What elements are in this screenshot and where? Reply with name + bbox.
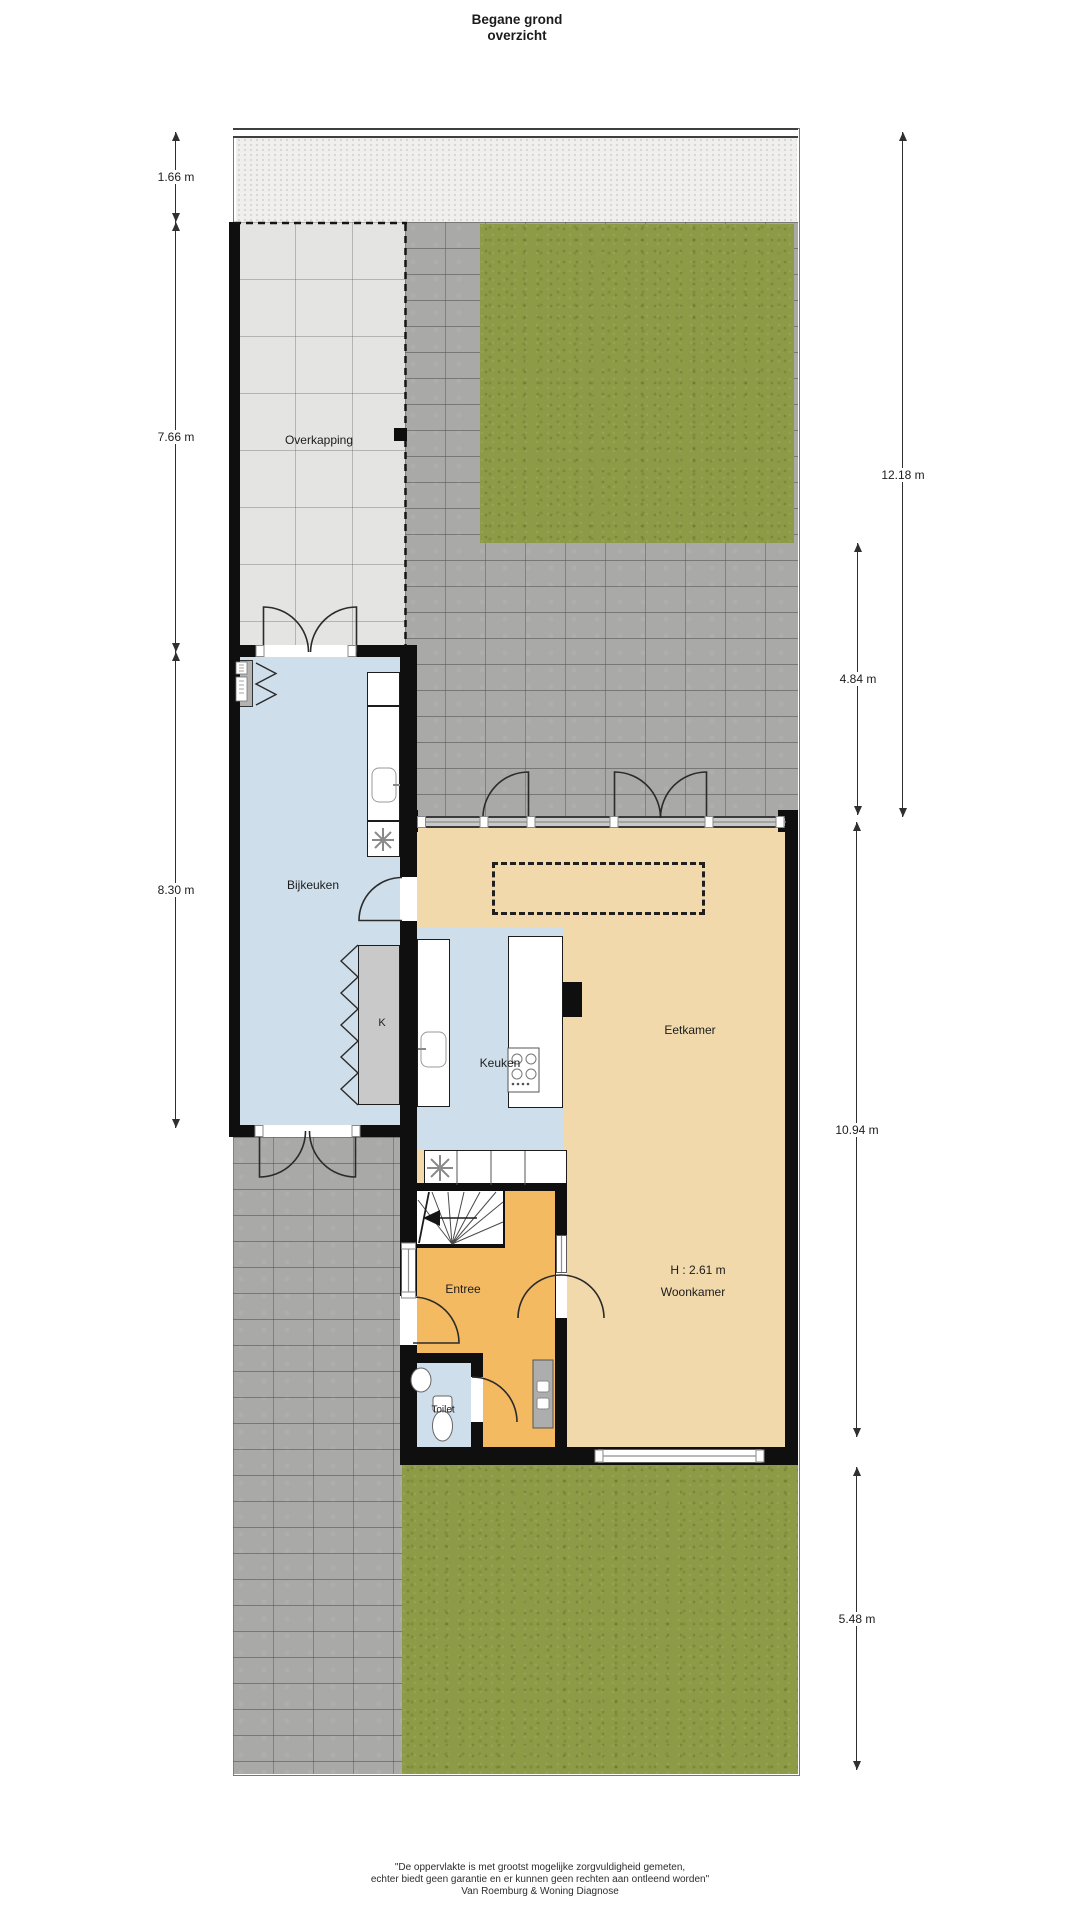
side-path-paving bbox=[233, 1137, 402, 1774]
rear-glass-facade bbox=[417, 816, 787, 828]
disclaimer-line1: "De oppervlakte is met grootst mogelijke… bbox=[0, 1862, 1080, 1874]
label-eetkamer: Eetkamer bbox=[664, 1023, 715, 1037]
dimension-left-2-label: 7.66 m bbox=[155, 430, 198, 444]
opening-bijkeuken-south-doors bbox=[259, 1125, 357, 1137]
bijkeuken-sink-counter bbox=[367, 706, 400, 821]
disclaimer: "De oppervlakte is met grootst mogelijke… bbox=[0, 1862, 1080, 1898]
label-woonkamer: Woonkamer bbox=[661, 1285, 725, 1299]
dimension-right-1-label: 12.18 m bbox=[878, 468, 927, 482]
disclaimer-line3: Van Roemburg & Woning Diagnose bbox=[0, 1886, 1080, 1898]
page-title-line2: overzicht bbox=[237, 28, 797, 44]
dimension-right-3: 10.94 m bbox=[856, 822, 857, 1437]
dimension-left-2: 7.66 m bbox=[175, 222, 176, 652]
dimension-right-2-label: 4.84 m bbox=[837, 672, 880, 686]
opening-front-door bbox=[400, 1296, 417, 1345]
opening-entree-living-door bbox=[556, 1273, 567, 1318]
wall-toilet-east-b bbox=[471, 1422, 483, 1447]
garden-grass-top bbox=[480, 224, 794, 543]
dimension-right-3-label: 10.94 m bbox=[832, 1123, 881, 1137]
dimension-right-2: 4.84 m bbox=[857, 543, 858, 815]
back-path bbox=[236, 133, 797, 222]
label-closet-k: K bbox=[378, 1017, 385, 1029]
label-woonkamer-height: H : 2.61 m bbox=[670, 1263, 725, 1277]
dimension-right-1: 12.18 m bbox=[902, 132, 903, 817]
window-entree-wall bbox=[556, 1235, 567, 1273]
wall-toilet-north bbox=[417, 1353, 483, 1363]
window-front bbox=[401, 1247, 416, 1295]
kitchen-island-sink bbox=[417, 939, 450, 1107]
dimension-left-1-label: 1.66 m bbox=[155, 170, 198, 184]
dining-table-dashed bbox=[492, 862, 705, 915]
floorplan-sheet: Begane grond overzicht bbox=[0, 0, 1080, 1920]
label-overkapping: Overkapping bbox=[285, 433, 353, 447]
kitchen-island-cooktop bbox=[508, 936, 563, 1108]
disclaimer-line2: echter biedt geen garantie en er kunnen … bbox=[0, 1874, 1080, 1886]
wall-toilet-east-a bbox=[471, 1363, 483, 1377]
dimension-right-4-label: 5.48 m bbox=[836, 1612, 879, 1626]
page-title-line1: Begane grond bbox=[237, 12, 797, 28]
rear-fence bbox=[233, 128, 798, 138]
opening-bijkeuken-keuken-door bbox=[400, 877, 417, 921]
garden-grass-bottom bbox=[402, 1465, 798, 1774]
opening-bijkeuken-north-doors bbox=[259, 645, 351, 657]
wall-east bbox=[785, 812, 798, 1465]
bijkeuken-cabinet bbox=[367, 672, 400, 706]
kitchen-bottom-counter bbox=[424, 1150, 567, 1186]
label-bijkeuken: Bijkeuken bbox=[287, 878, 339, 892]
dimension-left-3: 8.30 m bbox=[175, 652, 176, 1128]
wall-kitchen-south bbox=[417, 1183, 567, 1191]
staircase bbox=[417, 1190, 505, 1248]
dimension-left-3-label: 8.30 m bbox=[155, 883, 198, 897]
dimension-right-4: 5.48 m bbox=[856, 1467, 857, 1770]
page-title: Begane grond overzicht bbox=[237, 12, 797, 44]
dimension-left-1: 1.66 m bbox=[175, 132, 176, 222]
wall-west bbox=[229, 222, 240, 1137]
label-keuken: Keuken bbox=[480, 1056, 521, 1070]
label-entree: Entree bbox=[445, 1282, 480, 1296]
bijkeuken-appliance bbox=[367, 821, 400, 857]
opening-toilet-door bbox=[471, 1377, 483, 1422]
label-toilet: Toilet bbox=[431, 1405, 454, 1416]
wall-house-nw-corner bbox=[400, 810, 418, 832]
window-south bbox=[598, 1449, 762, 1463]
wall-island-stub bbox=[563, 982, 582, 1017]
